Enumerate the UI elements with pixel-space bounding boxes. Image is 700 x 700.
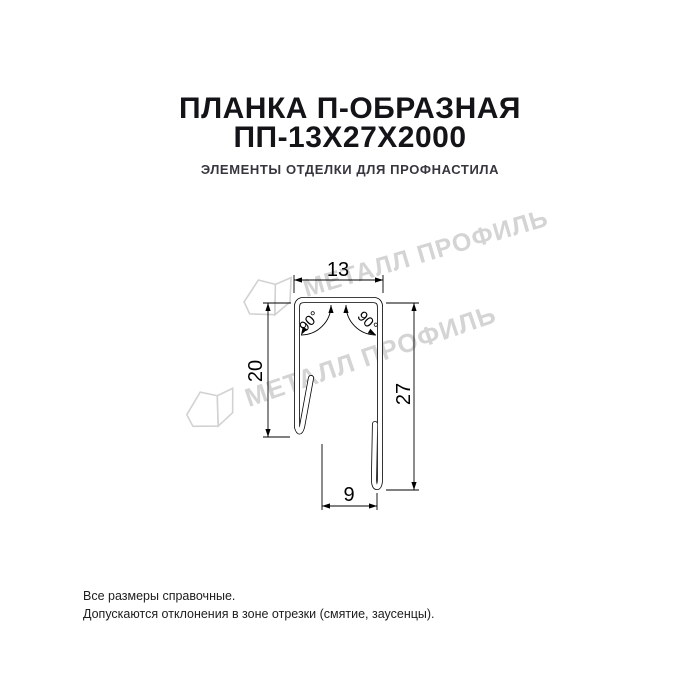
arrowhead-down [265,429,270,437]
dim-label-left-height: 20 [245,360,267,382]
dimension-bottom-gap: 9 [322,444,377,510]
watermark-lower: МЕТАЛЛ ПРОФИЛЬ [181,293,500,435]
angle-label-right: 90° [354,308,381,335]
arrowhead-down [411,482,416,490]
arrowhead-right [369,503,377,508]
arrowhead-up [411,303,416,311]
angle-label-left: 90° [296,308,323,335]
arc-arrowhead [328,305,333,313]
footnote-line-2: Допускаются отклонения в зоне отрезки (с… [83,606,435,624]
arrowhead-left [294,277,302,282]
footnotes: Все размеры справочные. Допускаются откл… [83,588,435,623]
product-drawing-page: ПЛАНКА П-ОБРАЗНАЯ ПП-13Х27Х2000 ЭЛЕМЕНТЫ… [0,0,700,700]
footnote-line-1: Все размеры справочные. [83,588,435,606]
watermark-text: МЕТАЛЛ ПРОФИЛЬ [300,204,552,303]
dim-label-right-height: 27 [393,383,415,405]
dim-label-top-width: 13 [327,259,349,281]
arrowhead-left [322,503,330,508]
arc-arrowhead [343,305,348,313]
angle-callout-right: 90° [343,305,380,337]
dim-label-bottom-gap: 9 [343,484,354,506]
angle-callout-left: 90° [296,305,333,336]
